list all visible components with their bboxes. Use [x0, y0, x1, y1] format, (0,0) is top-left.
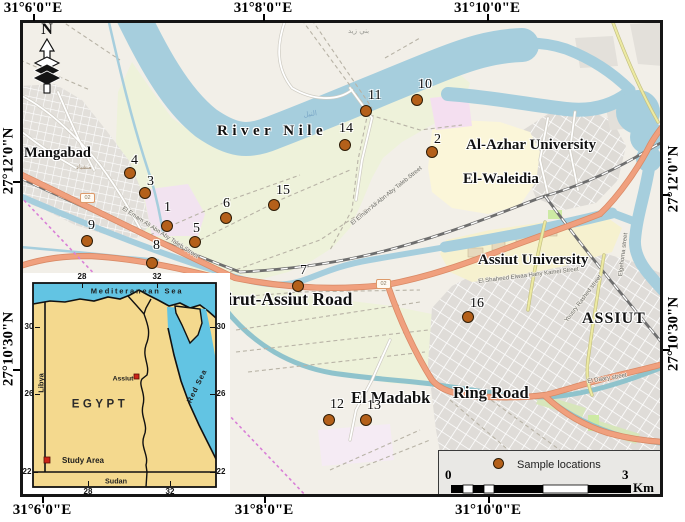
inset-tick-mark: [35, 327, 40, 328]
sample-point-dot: [268, 199, 280, 211]
inset-tick-mark: [210, 327, 215, 328]
sample-point-number: 5: [193, 222, 200, 236]
inset-tick-mark: [35, 394, 40, 395]
axis-tick: [33, 14, 35, 21]
sample-point-number: 15: [276, 184, 290, 198]
inset-tick-label: 22: [23, 468, 32, 476]
place-label: Ring Road: [453, 385, 529, 402]
scalebar: [449, 483, 649, 495]
sample-point-number: 13: [367, 399, 381, 413]
sample-point-number: 12: [330, 398, 344, 412]
arabic-label: منقباد: [76, 164, 92, 171]
sample-point-dot: [220, 212, 232, 224]
axis-label-left: 27°12'0"N: [2, 128, 17, 195]
sample-point-dot: [323, 414, 335, 426]
legend: Sample locations 0 3 Km: [438, 450, 663, 496]
axis-tick: [663, 349, 670, 351]
inset-tick-mark: [170, 481, 171, 486]
axis-tick: [13, 369, 20, 371]
inset-tick-mark: [82, 283, 83, 288]
inset-tick-label: 26: [25, 390, 34, 398]
sample-point-number: 10: [418, 78, 432, 92]
al-azhar-area: [428, 120, 540, 214]
inset-tick-label: 30: [217, 323, 226, 331]
map-figure: 0202 MangabadRiver NileAl-Azhar Universi…: [0, 0, 685, 522]
sample-point-number: 11: [368, 89, 381, 103]
inset-tick-mark: [157, 283, 158, 288]
inset-label: Study Area: [62, 457, 104, 465]
arabic-label: بني زيد: [348, 28, 369, 35]
place-label: El-Waleidia: [463, 172, 539, 187]
sample-point-number: 8: [153, 239, 160, 253]
inset-tick-mark: [210, 394, 215, 395]
assiut-marker: [134, 374, 139, 379]
axis-label-right: 27°12'0"N: [667, 146, 682, 213]
sample-point-dot: [292, 280, 304, 292]
sample-point-number: 3: [147, 175, 154, 189]
inset-label: Sudan: [105, 477, 127, 484]
study-area-marker: [44, 457, 50, 463]
axis-tick: [42, 496, 44, 503]
axis-label-bottom: 31°8'0"E: [235, 503, 294, 518]
inset-label: Mediteranean Sea: [91, 287, 184, 295]
inset-label: EGYPT: [72, 399, 128, 411]
sample-location-icon: [493, 458, 504, 469]
inset-tick-label: 22: [217, 468, 226, 476]
sample-point-number: 7: [300, 264, 307, 278]
sample-point-dot: [189, 236, 201, 248]
sample-point-dot: [146, 257, 158, 269]
scalebar-max: 3: [622, 468, 629, 481]
north-label: N: [27, 22, 67, 38]
sample-point-dot: [426, 146, 438, 158]
sample-point-number: 2: [434, 133, 441, 147]
sample-point-dot: [360, 105, 372, 117]
inset-tick-mark: [88, 481, 89, 486]
legend-label: Sample locations: [517, 459, 601, 471]
inset-tick-mark: [210, 472, 215, 473]
place-label: Assiut University: [478, 253, 588, 268]
inset-tick-label: 30: [25, 323, 34, 331]
place-label: ASSIUT: [582, 311, 646, 327]
place-label: Al-Azhar University: [466, 138, 596, 153]
place-label: River Nile: [217, 124, 327, 139]
inset-label: Libya: [37, 373, 45, 393]
inset-tick-label: 28: [84, 488, 93, 496]
place-label: El Madabk: [351, 390, 430, 407]
inset-tick-mark: [33, 472, 38, 473]
sample-point-dot: [360, 414, 372, 426]
sample-point-dot: [462, 311, 474, 323]
compass-icon: [27, 38, 67, 94]
sample-point-dot: [161, 220, 173, 232]
sample-point-number: 4: [131, 154, 138, 168]
north-arrow: N: [27, 22, 67, 96]
place-label: Mangabad: [24, 146, 91, 161]
inset-tick-label: 32: [166, 488, 175, 496]
sample-point-dot: [411, 94, 423, 106]
axis-tick: [263, 14, 265, 21]
axis-tick: [264, 496, 266, 503]
sample-point-number: 9: [88, 219, 95, 233]
sample-point-number: 16: [470, 297, 484, 311]
axis-tick: [13, 181, 20, 183]
inset-label: Assiut: [113, 377, 134, 384]
sample-point-number: 14: [339, 122, 353, 136]
axis-tick: [487, 14, 489, 21]
sample-point-number: 1: [164, 201, 171, 215]
axis-label-bottom: 31°6'0"E: [13, 503, 72, 518]
axis-label-left: 27°10'30"N: [2, 312, 17, 386]
inset-tick-label: 32: [153, 273, 162, 281]
sample-point-dot: [124, 167, 136, 179]
sample-point-number: 6: [223, 197, 230, 211]
scalebar-zero: 0: [445, 468, 452, 481]
road-shield: 02: [80, 193, 95, 203]
axis-tick: [488, 496, 490, 503]
axis-tick: [663, 194, 670, 196]
axis-label-right: 27°10'30"N: [667, 297, 682, 371]
inset-tick-label: 28: [78, 273, 87, 281]
sample-point-dot: [81, 235, 93, 247]
inset-map: Mediteranean SeaEGYPTLibyaRed SeaAssiutS…: [20, 273, 230, 500]
inset-tick-label: 26: [217, 390, 226, 398]
sample-point-dot: [339, 139, 351, 151]
axis-label-bottom: 31°10'0"E: [455, 503, 521, 518]
road-shield: 02: [376, 279, 391, 289]
